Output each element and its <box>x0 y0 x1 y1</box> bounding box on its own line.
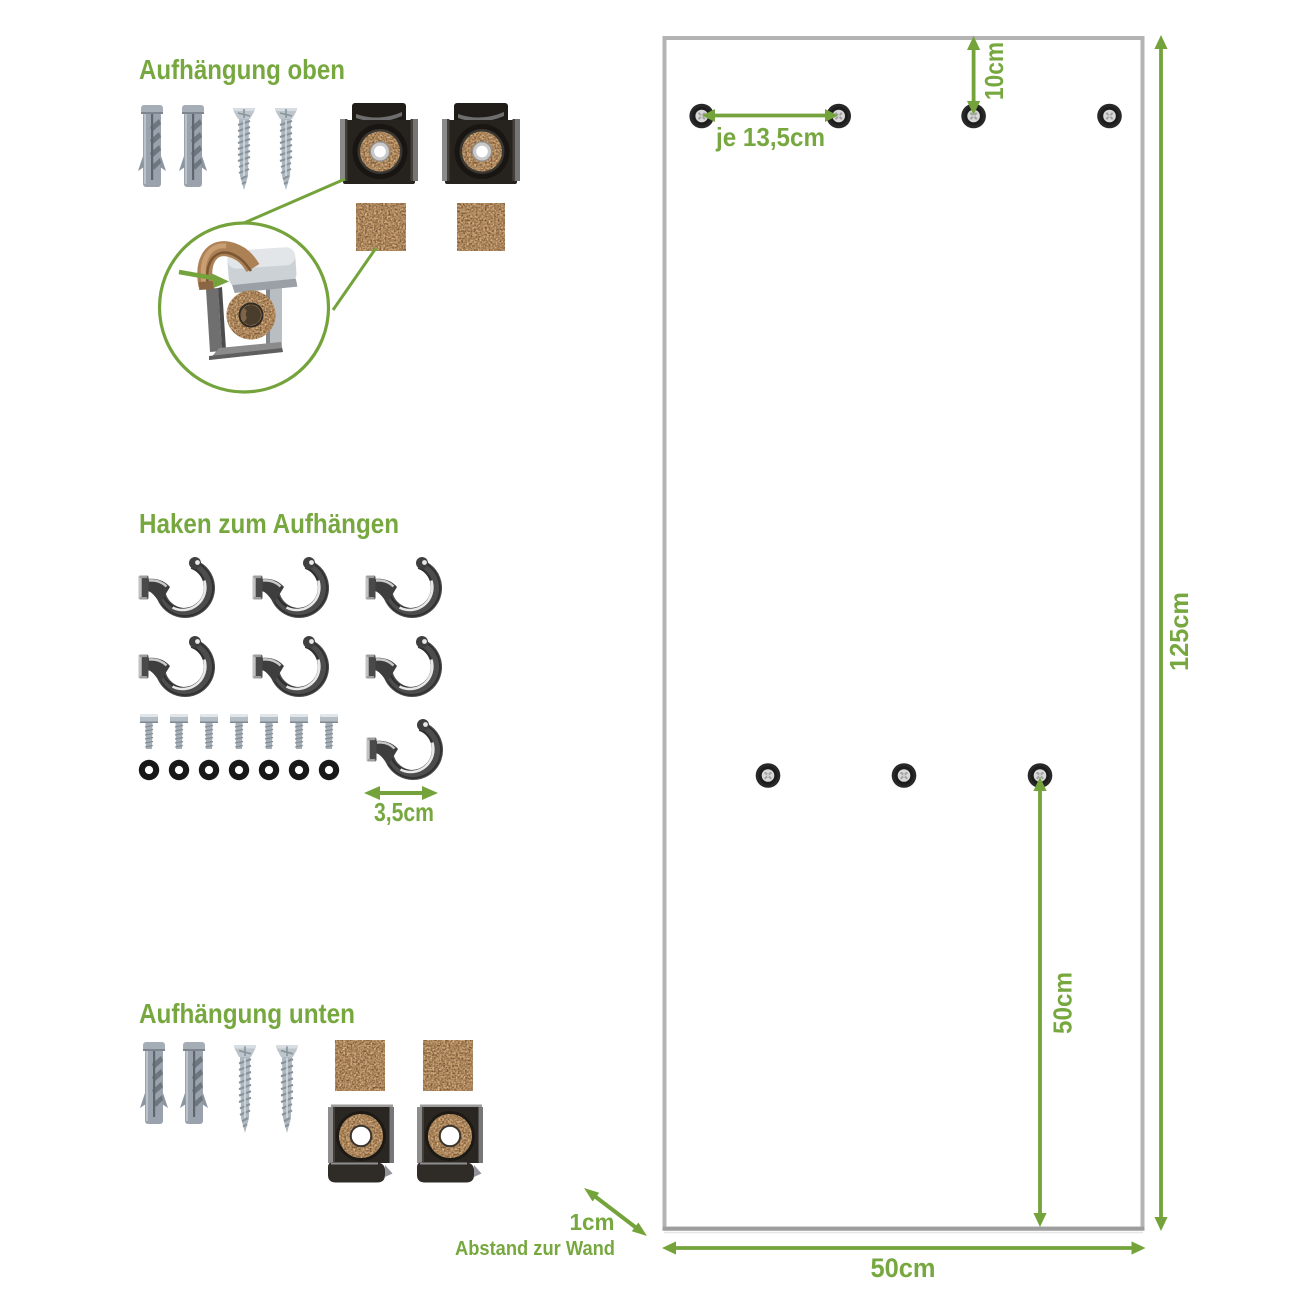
svg-text:Aufhängung oben: Aufhängung oben <box>139 54 345 85</box>
svg-text:Aufhängung unten: Aufhängung unten <box>139 998 355 1029</box>
svg-text:Haken zum Aufhängen: Haken zum Aufhängen <box>139 508 399 539</box>
svg-text:50cm: 50cm <box>1048 972 1078 1034</box>
svg-text:50cm: 50cm <box>871 1253 936 1283</box>
svg-text:Abstand zur Wand: Abstand zur Wand <box>455 1238 615 1260</box>
svg-text:125cm: 125cm <box>1164 592 1194 671</box>
svg-text:1cm: 1cm <box>570 1209 615 1235</box>
svg-text:je 13,5cm: je 13,5cm <box>715 122 825 152</box>
svg-text:10cm: 10cm <box>979 42 1009 100</box>
svg-text:3,5cm: 3,5cm <box>374 797 434 827</box>
